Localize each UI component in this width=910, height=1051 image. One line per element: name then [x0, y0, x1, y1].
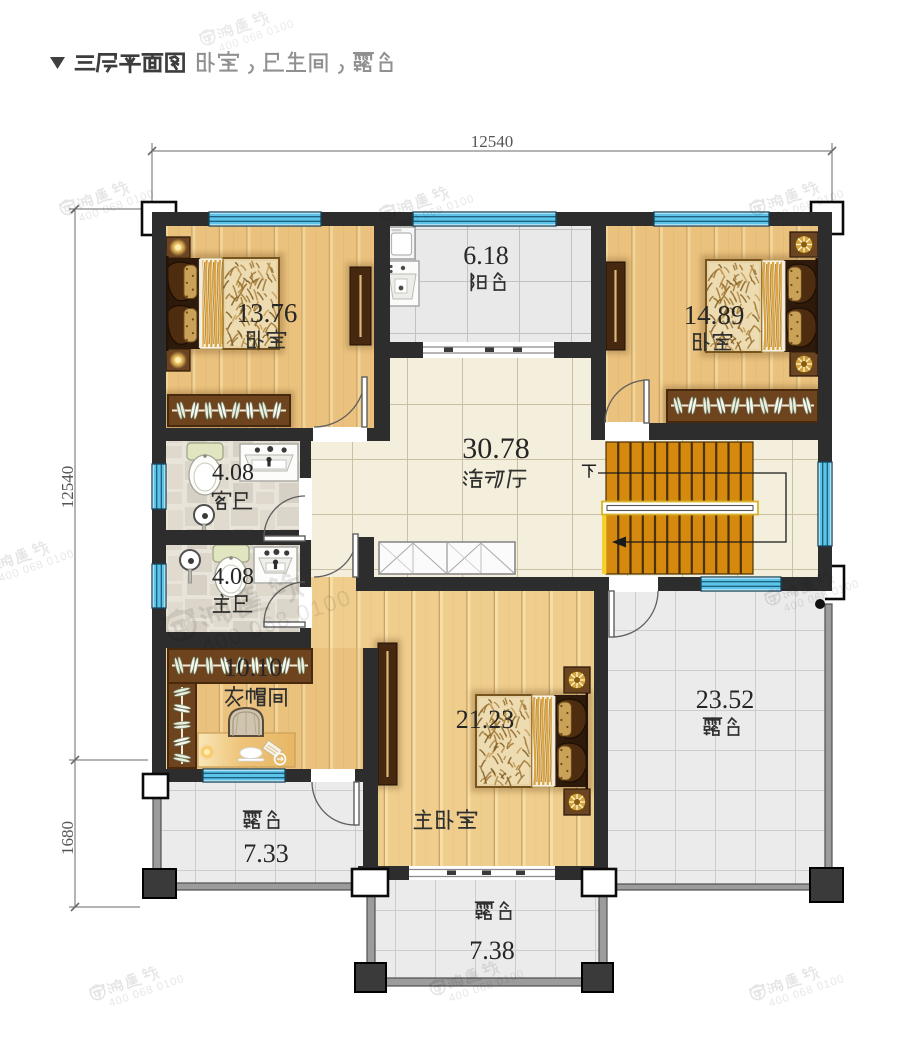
svg-text:14.89: 14.89 [684, 300, 745, 330]
svg-text:21.23: 21.23 [456, 705, 515, 734]
svg-text:1680: 1680 [58, 821, 77, 855]
svg-text:10.10: 10.10 [224, 653, 283, 682]
svg-text:12540: 12540 [471, 132, 514, 151]
svg-text:30.78: 30.78 [462, 432, 530, 465]
svg-text:4.08: 4.08 [212, 564, 254, 590]
svg-text:13.76: 13.76 [237, 298, 298, 328]
svg-text:12540: 12540 [58, 466, 77, 509]
svg-text:23.52: 23.52 [696, 685, 755, 714]
svg-text:7.38: 7.38 [469, 936, 515, 965]
svg-text:6.18: 6.18 [463, 241, 509, 270]
svg-text:4.08: 4.08 [212, 460, 254, 486]
svg-text:7.33: 7.33 [243, 839, 289, 868]
